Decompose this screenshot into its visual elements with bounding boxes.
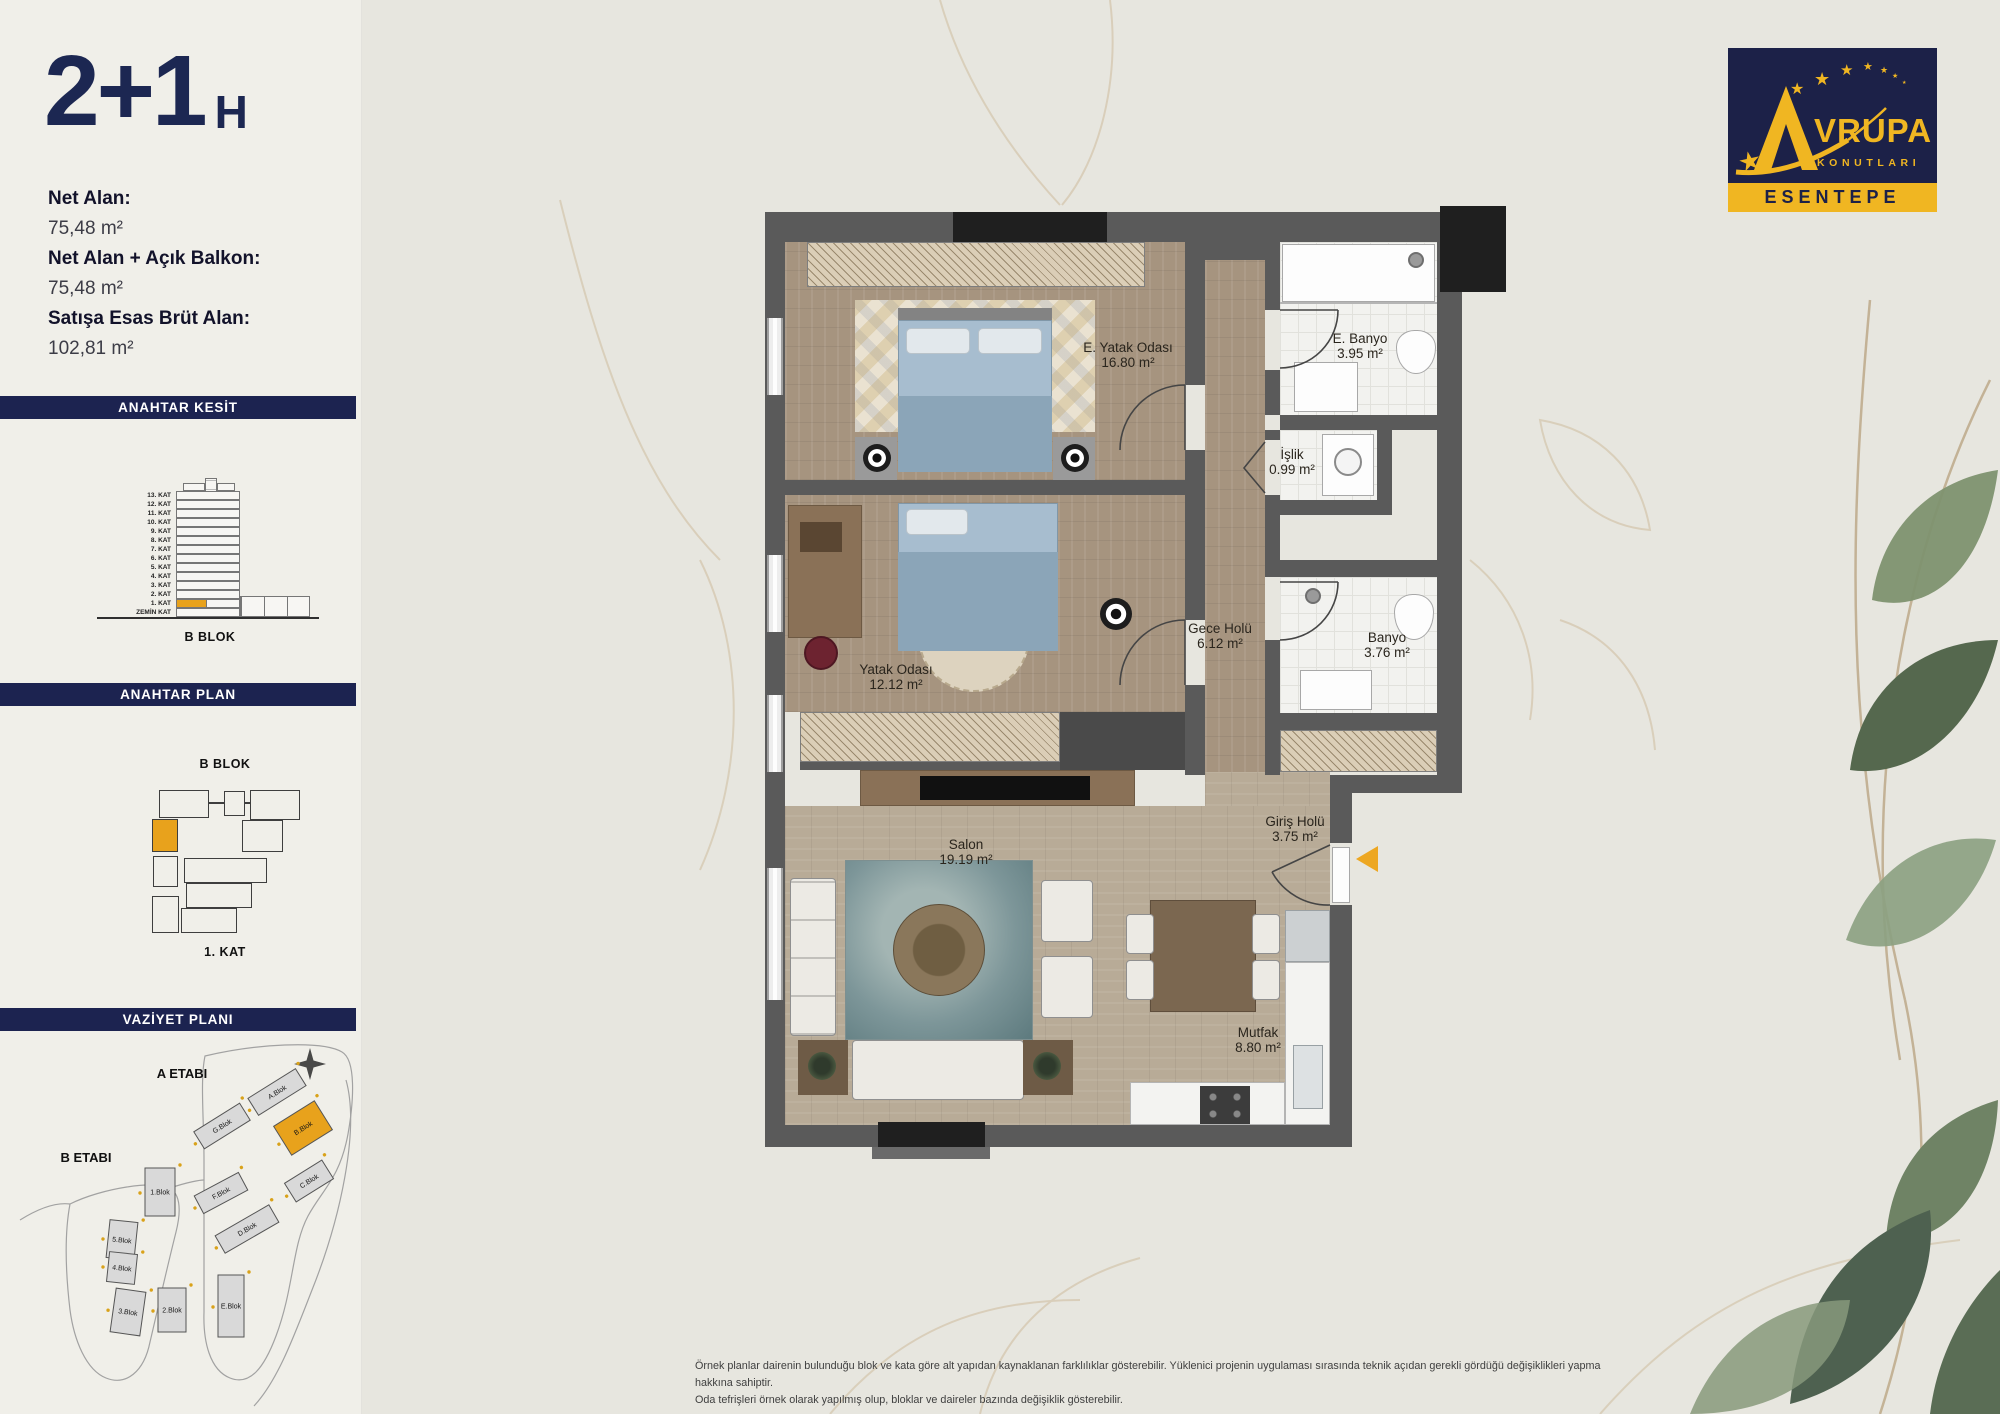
entrance-arrow-icon: [1356, 846, 1378, 872]
floor-row: [176, 509, 240, 518]
room-name: Giriş Holü: [1265, 814, 1324, 829]
site-block: E.Blok: [211, 1270, 250, 1337]
room-area: 3.76 m²: [1364, 645, 1410, 660]
floor-row: [176, 554, 240, 563]
floor-row: [176, 563, 240, 572]
site-block: 1.Blok: [138, 1163, 181, 1216]
site-plan: A ETABI B ETABI A.BlokG.BlokB.BlokC.Blok…: [10, 1040, 360, 1414]
floor-label: 10. KAT: [101, 519, 171, 526]
room-area: 3.95 m²: [1333, 346, 1388, 361]
room-label: E. Banyo3.95 m²: [1333, 331, 1388, 361]
floor-row: [176, 500, 240, 509]
keyplan-floor-label: 1. KAT: [150, 945, 300, 959]
area-summary: Net Alan: 75,48 m² Net Alan + Açık Balko…: [48, 184, 260, 364]
floor-row: [176, 590, 240, 599]
star-icon: ★: [1863, 62, 1873, 73]
ground-line: [97, 617, 319, 619]
keyplan-unit: [181, 908, 237, 933]
project-name-banner: ESENTEPE: [1728, 183, 1937, 212]
info-sidebar: 2+1 H Net Alan: 75,48 m² Net Alan + Açık…: [0, 0, 362, 1414]
gross-area-label: Satışa Esas Brüt Alan:: [48, 304, 260, 334]
keyplan-block-label: B BLOK: [150, 757, 300, 771]
etap-a-label: A ETABI: [157, 1066, 208, 1081]
floor-label: 1. KAT: [101, 600, 171, 607]
room-name: İşlik: [1269, 447, 1315, 462]
room-name: Mutfak: [1235, 1025, 1281, 1040]
floor-label: 12. KAT: [101, 501, 171, 508]
room-name: Yatak Odası: [859, 662, 932, 677]
tower-roof-cap: [217, 483, 235, 491]
tower-roof-cap: [183, 483, 205, 491]
star-icon: ★: [1840, 63, 1853, 78]
room-label: Salon19.19 m²: [939, 837, 992, 867]
floor-label: 9. KAT: [101, 528, 171, 535]
star-icon: ★: [1814, 70, 1830, 88]
site-block-label: 1.Blok: [150, 1190, 170, 1197]
site-block: 3.Blok: [103, 1283, 153, 1337]
gross-area-value: 102,81 m²: [48, 334, 260, 364]
keyplan-unit: [242, 820, 283, 852]
floor-row: [176, 545, 240, 554]
floor-row: [176, 518, 240, 527]
site-roads: [20, 1045, 353, 1406]
disclaimer-line-1: Örnek planlar dairenin bulunduğu blok ve…: [695, 1358, 1625, 1392]
star-icon: ★: [1790, 82, 1804, 98]
keyplan-unit: [184, 858, 267, 883]
kesit-block-label: B BLOK: [95, 630, 325, 644]
section-title-plan: ANAHTAR PLAN: [0, 683, 356, 706]
keyplan-connector: [245, 802, 250, 804]
brand-wordmark: VRUPA: [1814, 112, 1932, 150]
room-area: 19.19 m²: [939, 852, 992, 867]
site-block: D.Blok: [207, 1197, 285, 1256]
floor-row: [176, 581, 240, 590]
keyplan-unit: [250, 790, 300, 820]
net-balcony-label: Net Alan + Açık Balkon:: [48, 244, 260, 274]
unit-variant: H: [215, 88, 248, 136]
room-label: İşlik0.99 m²: [1269, 447, 1315, 477]
room-name: Salon: [939, 837, 992, 852]
room-label: Mutfak8.80 m²: [1235, 1025, 1281, 1055]
site-block: F.Blok: [186, 1165, 254, 1217]
star-icon: ★: [1736, 146, 1764, 176]
unit-type-title: 2+1 H: [44, 46, 248, 136]
room-name: E. Banyo: [1333, 331, 1388, 346]
star-icon: ★: [1880, 66, 1888, 75]
brand-logo: ★ ★ ★ ★ ★ ★ ★ ★ VRUPA KONUTLARI ESENTEPE: [1728, 48, 1937, 212]
disclaimer-line-2: Oda tefrişleri örnek olarak yapılmış olu…: [695, 1392, 1625, 1409]
logo-background: ★ ★ ★ ★ ★ ★ ★ ★ VRUPA KONUTLARI: [1728, 48, 1937, 183]
site-block: 2.Blok: [151, 1283, 192, 1332]
floor-label: ZEMİN KAT: [101, 609, 171, 616]
floor-row: [176, 572, 240, 581]
room-area: 6.12 m²: [1188, 636, 1252, 651]
section-title-kesit: ANAHTAR KESİT: [0, 396, 356, 419]
floor-row: [176, 536, 240, 545]
floor-label: 5. KAT: [101, 564, 171, 571]
unit-type: 2+1: [44, 46, 205, 136]
floor-label: 3. KAT: [101, 582, 171, 589]
net-area-value: 75,48 m²: [48, 214, 260, 244]
room-label: E. Yatak Odası16.80 m²: [1083, 340, 1173, 370]
star-icon: ★: [1902, 81, 1906, 86]
highlight-floor: [176, 599, 207, 608]
brochure-page: { "header": { "title": "2+1", "suffix": …: [0, 0, 2000, 1414]
room-area: 0.99 m²: [1269, 462, 1315, 477]
room-name: Gece Holü: [1188, 621, 1252, 636]
room-name: E. Yatak Odası: [1083, 340, 1173, 355]
site-block-label: E.Blok: [221, 1304, 242, 1311]
floor-label: 6. KAT: [101, 555, 171, 562]
floor-label: 8. KAT: [101, 537, 171, 544]
keyplan-connector: [209, 802, 224, 804]
floor-label: 7. KAT: [101, 546, 171, 553]
room-area: 12.12 m²: [859, 677, 932, 692]
etap-b-label: B ETABI: [60, 1150, 111, 1165]
disclaimer-text: Örnek planlar dairenin bulunduğu blok ve…: [695, 1358, 1625, 1409]
logo-a-icon: [1754, 86, 1818, 170]
room-area: 16.80 m²: [1083, 355, 1173, 370]
floor-row: [176, 608, 240, 617]
site-block-label: 2.Blok: [162, 1308, 182, 1315]
floor-label: 13. KAT: [101, 492, 171, 499]
star-icon: ★: [1892, 73, 1898, 80]
site-block: G.Blok: [186, 1096, 256, 1153]
room-label: Giriş Holü3.75 m²: [1265, 814, 1324, 844]
floor-label: 11. KAT: [101, 510, 171, 517]
room-label: Yatak Odası12.12 m²: [859, 662, 932, 692]
keyplan-unit: [159, 790, 209, 818]
net-balcony-value: 75,48 m²: [48, 274, 260, 304]
keyplan-unit: [153, 856, 178, 887]
room-area: 3.75 m²: [1265, 829, 1324, 844]
room-name: Banyo: [1364, 630, 1410, 645]
key-plan-diagram: [140, 785, 305, 940]
floor-plan: E. Yatak Odası16.80 m²E. Banyo3.95 m²İşl…: [760, 200, 1510, 1175]
keyplan-unit: [186, 883, 252, 908]
keyplan-unit: [224, 791, 245, 816]
net-area-label: Net Alan:: [48, 184, 260, 214]
floor-row: [176, 527, 240, 536]
room-label: Gece Holü6.12 m²: [1188, 621, 1252, 651]
floor-row: [176, 491, 240, 500]
floor-label: 4. KAT: [101, 573, 171, 580]
keyplan-highlight-unit: [152, 819, 178, 852]
floor-label: 2. KAT: [101, 591, 171, 598]
room-area: 8.80 m²: [1235, 1040, 1281, 1055]
annex-wing: [240, 596, 310, 617]
brand-subtitle: KONUTLARI: [1817, 157, 1920, 169]
keyplan-unit: [152, 896, 179, 933]
site-block: C.Blok: [276, 1152, 339, 1205]
watercolor-leaves: [1690, 470, 2000, 1414]
room-label: Banyo3.76 m²: [1364, 630, 1410, 660]
section-title-vaziyet: VAZİYET PLANI: [0, 1008, 356, 1031]
